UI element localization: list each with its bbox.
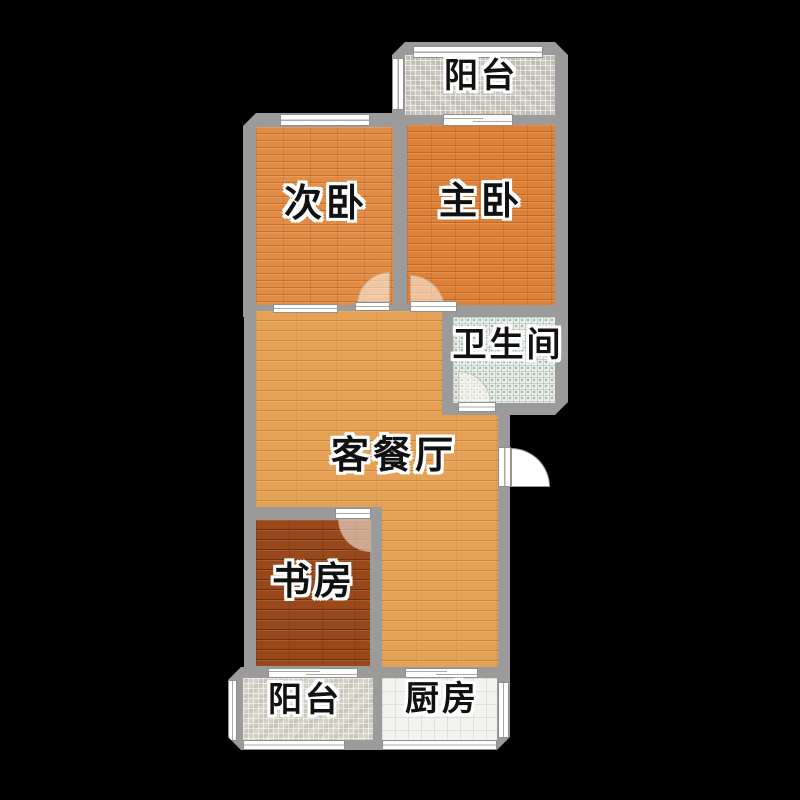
door-leaf-study (335, 508, 371, 519)
floor-plan-canvas: 阳台 次卧 主卧 卫生间 客餐厅 书房 阳台 厨房 (0, 0, 800, 800)
window-balcony-top-left (392, 58, 404, 110)
room-label-master-bedroom: 主卧 (439, 182, 523, 220)
room-label-kitchen: 厨房 (405, 682, 479, 716)
sliding-door-study-balcony (268, 668, 358, 678)
room-label-balcony-top: 阳台 (444, 59, 518, 93)
window-balcony-bottom-left (228, 680, 237, 741)
window-kitchen-bottom (382, 740, 497, 750)
door-leaf-entry (498, 447, 511, 487)
window-second-bedroom-living (273, 304, 338, 313)
door-leaf-bathroom (458, 402, 496, 412)
door-swing-entry (511, 448, 550, 487)
room-label-balcony-bottom: 阳台 (268, 683, 342, 717)
door-leaf-second-bedroom (355, 302, 390, 311)
room-label-study: 书房 (272, 562, 356, 600)
room-label-bathroom: 卫生间 (453, 328, 564, 362)
window-balcony-bottom (243, 740, 345, 750)
sliding-door-kitchen (405, 668, 478, 678)
door-leaf-master-bedroom (410, 301, 457, 312)
sliding-door-balcony-master (443, 114, 513, 126)
room-label-second-bedroom: 次卧 (284, 184, 368, 222)
window-second-bedroom-top (280, 114, 370, 126)
window-kitchen-right (498, 682, 509, 738)
room-label-living-dining: 客餐厅 (331, 436, 457, 474)
